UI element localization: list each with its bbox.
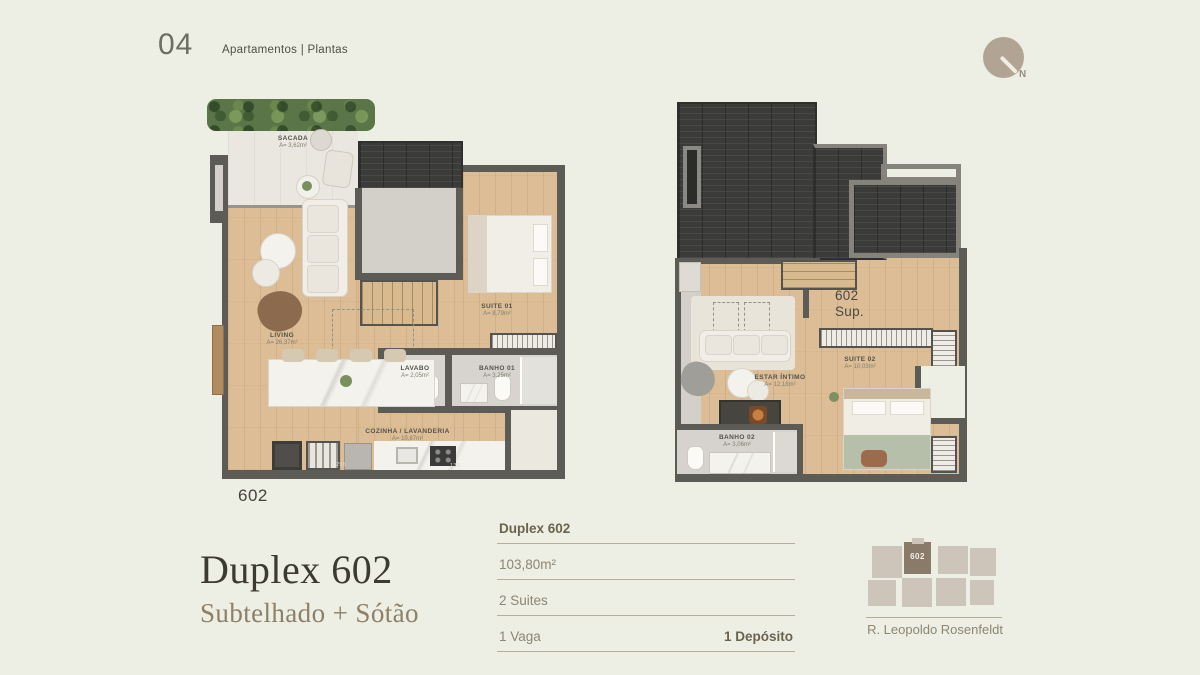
keyplan-divider — [866, 617, 1002, 618]
kitchen-cabinet — [272, 441, 302, 470]
wardrobe-right-lower — [931, 436, 957, 473]
bath-wall-v2 — [445, 355, 452, 413]
spec-suites: 2 Suites — [499, 593, 548, 608]
wardrobe-right-upper — [931, 330, 957, 368]
keyplan-block — [902, 578, 932, 607]
spec-row-parking: 1 Vaga 1 Depósito — [497, 616, 795, 652]
spec-unit: Duplex 602 — [499, 521, 570, 536]
keyplan-street: R. Leopoldo Rosenfeldt — [866, 622, 1004, 637]
stool — [316, 349, 338, 362]
plant — [302, 181, 312, 191]
pouf — [861, 450, 887, 467]
fireplace — [749, 406, 767, 424]
compass-north-label: N — [1019, 69, 1026, 80]
spec-row-suites: 2 Suites — [497, 580, 795, 616]
stool — [282, 349, 304, 362]
wall-top-right — [463, 165, 565, 172]
side-table-estar — [747, 380, 769, 402]
keyplan-block — [872, 546, 902, 578]
void-dashed-outline — [744, 302, 770, 332]
wall-right — [959, 248, 967, 481]
floor-plan-upper: 602 Sup. ESTAR ÍNTIMOA= 12,18m² SUITE 02… — [675, 100, 967, 487]
shaft-wall-right — [456, 188, 463, 280]
floor-plan-lower: SACADAA= 3,62m² LIVINGA= 26,37m² SUITE 0… — [210, 103, 565, 488]
balcony-lounge-chair — [322, 149, 355, 189]
page: { "page": {"background": "#edeee4"}, "he… — [0, 0, 1200, 675]
keyplan-block — [912, 538, 924, 544]
island-plant — [340, 375, 352, 387]
page-number: 04 — [158, 28, 193, 62]
shower — [520, 357, 557, 404]
void-dashed-outline — [713, 302, 739, 332]
entry-nook — [505, 410, 557, 470]
bed-suite01 — [468, 215, 552, 293]
compass: N — [983, 37, 1043, 97]
shower-banho02 — [773, 432, 797, 472]
skylight — [683, 146, 701, 208]
kitchen-sink — [396, 447, 418, 464]
sideboard — [212, 325, 224, 395]
window-left — [215, 165, 223, 211]
spec-area: 103,80m² — [499, 557, 556, 572]
spec-parking: 1 Vaga — [499, 629, 541, 644]
suite02-plant — [829, 392, 839, 402]
banho02-wall-right — [797, 424, 803, 480]
sofa-estar — [699, 330, 791, 362]
keyplan-unit-label: 602 — [904, 552, 931, 561]
banho02-toilet — [687, 446, 704, 470]
wardrobe-suite02 — [819, 328, 933, 348]
wall-bottom — [675, 474, 967, 482]
stool — [384, 349, 406, 362]
keyplan-highlight: 602 — [904, 542, 931, 574]
page-title: Duplex 602 — [200, 546, 393, 593]
hedge-plants — [207, 99, 375, 131]
bed-suite02 — [843, 388, 931, 470]
stool — [350, 349, 372, 362]
corner-shelf — [679, 262, 701, 292]
banho02-vanity — [709, 452, 771, 474]
keyplan-block — [868, 580, 896, 606]
pantry — [306, 441, 340, 470]
wall-right — [557, 165, 565, 478]
page-subtitle: Subtelhado + Sótão — [200, 598, 419, 629]
sofa — [302, 199, 348, 297]
banho01-toilet — [494, 375, 511, 401]
banho01-sink — [460, 383, 488, 403]
breadcrumb: Apartamentos | Plantas — [222, 44, 348, 56]
spec-row-unit: Duplex 602 — [497, 518, 795, 544]
balcony-table — [310, 129, 332, 151]
keyplan-block — [970, 548, 996, 576]
wall-bottom — [222, 470, 565, 479]
keyplan-block — [936, 578, 966, 606]
roof-section-lower — [358, 141, 463, 190]
shaft-wall-bottom — [355, 273, 463, 280]
keyplan-block — [938, 546, 968, 574]
dimension-label: 295 — [336, 462, 346, 468]
stairs-upper — [781, 260, 857, 290]
stair-wall — [803, 290, 809, 318]
upper-plan-unit-label: 602 Sup. — [835, 288, 864, 319]
spec-row-area: 103,80m² — [497, 544, 795, 580]
concrete-shaft — [362, 188, 456, 273]
keyplan-block — [970, 580, 994, 605]
roof-section-right — [849, 180, 961, 258]
shaft-wall-left — [355, 188, 362, 280]
washer — [344, 443, 372, 470]
lower-plan-unit-label: 602 — [238, 486, 268, 506]
spec-list: Duplex 602 103,80m² 2 Suites 1 Vaga 1 De… — [497, 518, 795, 652]
spec-deposit: 1 Depósito — [724, 629, 793, 644]
dimension-label: 130 — [450, 463, 460, 469]
keyplan: 602 R. Leopoldo Rosenfeldt — [866, 538, 1004, 638]
side-table — [252, 259, 280, 287]
